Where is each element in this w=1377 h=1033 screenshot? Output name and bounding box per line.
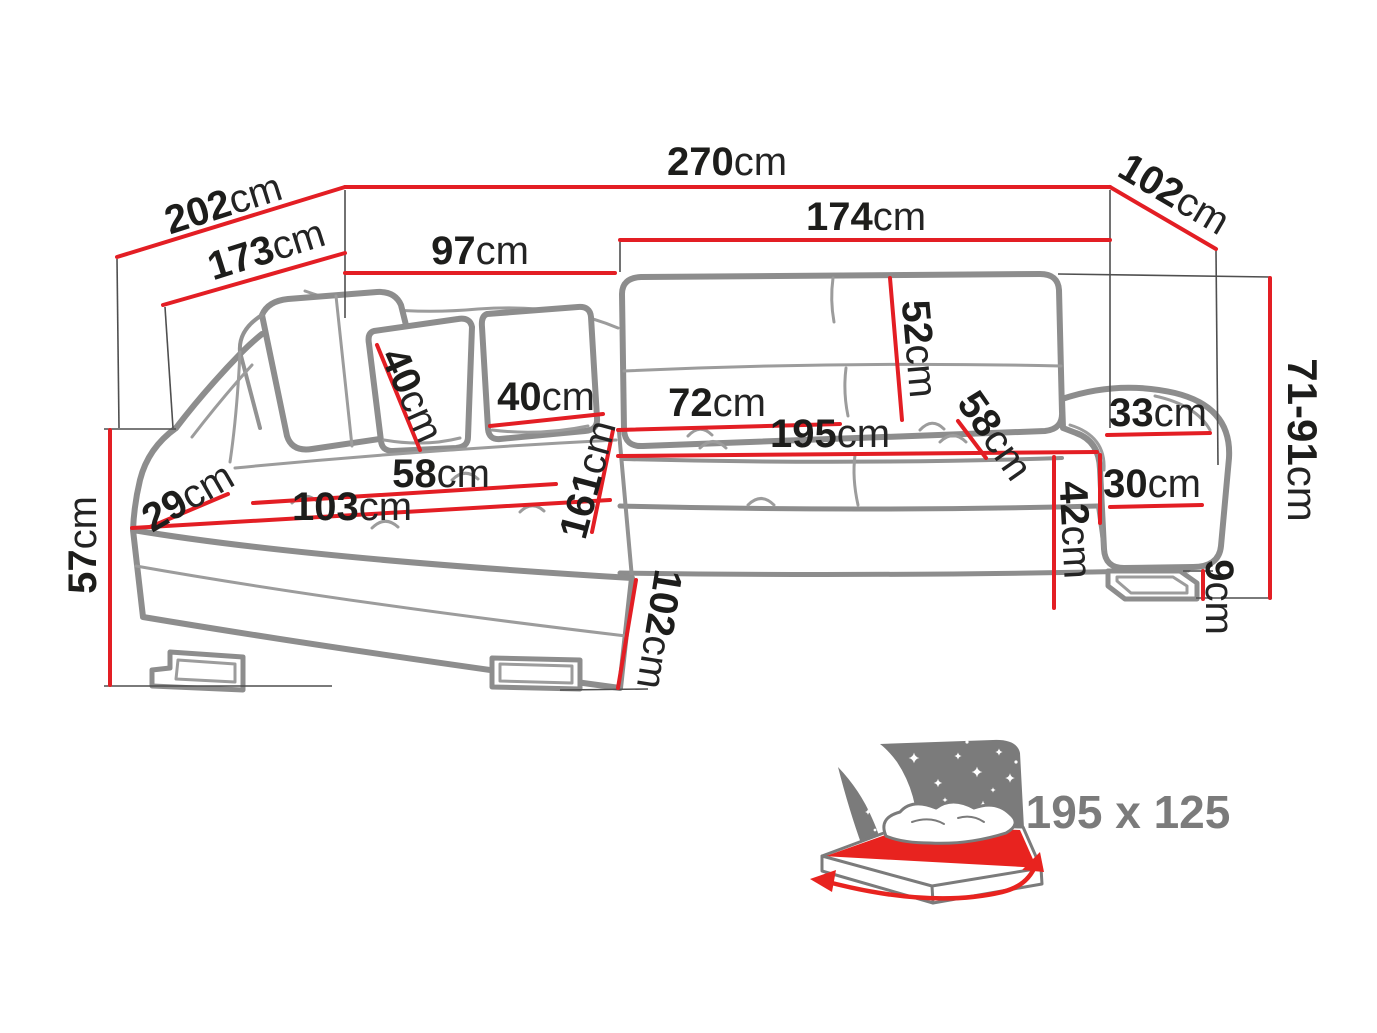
dim-label-chaise-seat-length: 103cm bbox=[292, 485, 412, 529]
sofa-bed-icon: 195 x 125 bbox=[810, 740, 1230, 903]
dim-label-backrest-height: 52cm bbox=[893, 298, 945, 399]
dim-label-total-width: 270cm bbox=[667, 140, 787, 184]
dim-label-seat-front-height: 42cm bbox=[1051, 480, 1100, 580]
bed-pillows bbox=[884, 802, 1015, 843]
dim-label-chaise-width: 97cm bbox=[431, 229, 529, 273]
dim-label-seat-section: 72cm bbox=[668, 381, 766, 425]
dim-label-arm-height: 57cm bbox=[61, 496, 105, 594]
dim-label-seat-total-width: 195cm bbox=[770, 412, 890, 456]
base-bottom-edge bbox=[620, 570, 1188, 574]
dim-label-chaise-arm-depth: 29cm bbox=[134, 453, 241, 540]
arrow-head-left-icon bbox=[810, 870, 836, 892]
dim-label-chaise-front-depth: 102cm bbox=[628, 567, 690, 692]
leg-left bbox=[152, 652, 243, 690]
dim-label-seat-front-width: 174cm bbox=[806, 195, 926, 239]
dim-label-total-height: 71-91cm bbox=[1279, 358, 1326, 521]
sleeping-area-size: 195 x 125 bbox=[1026, 786, 1231, 838]
dim-label-leg-height: 9cm bbox=[1197, 559, 1241, 635]
seat-front-edge bbox=[620, 506, 1098, 509]
headrest-side-flap bbox=[240, 315, 262, 428]
sofa-dimension-diagram: 270cm 202cm 173cm 97cm 174cm 102cm 52cm … bbox=[0, 0, 1377, 1033]
dim-label-armrest-top-width: 33cm bbox=[1109, 391, 1207, 435]
dim-label-armrest-width: 30cm bbox=[1103, 462, 1201, 506]
dim-label-pillow-front: 40cm bbox=[497, 375, 595, 419]
dim-label-side-depth: 102cm bbox=[1111, 144, 1237, 243]
